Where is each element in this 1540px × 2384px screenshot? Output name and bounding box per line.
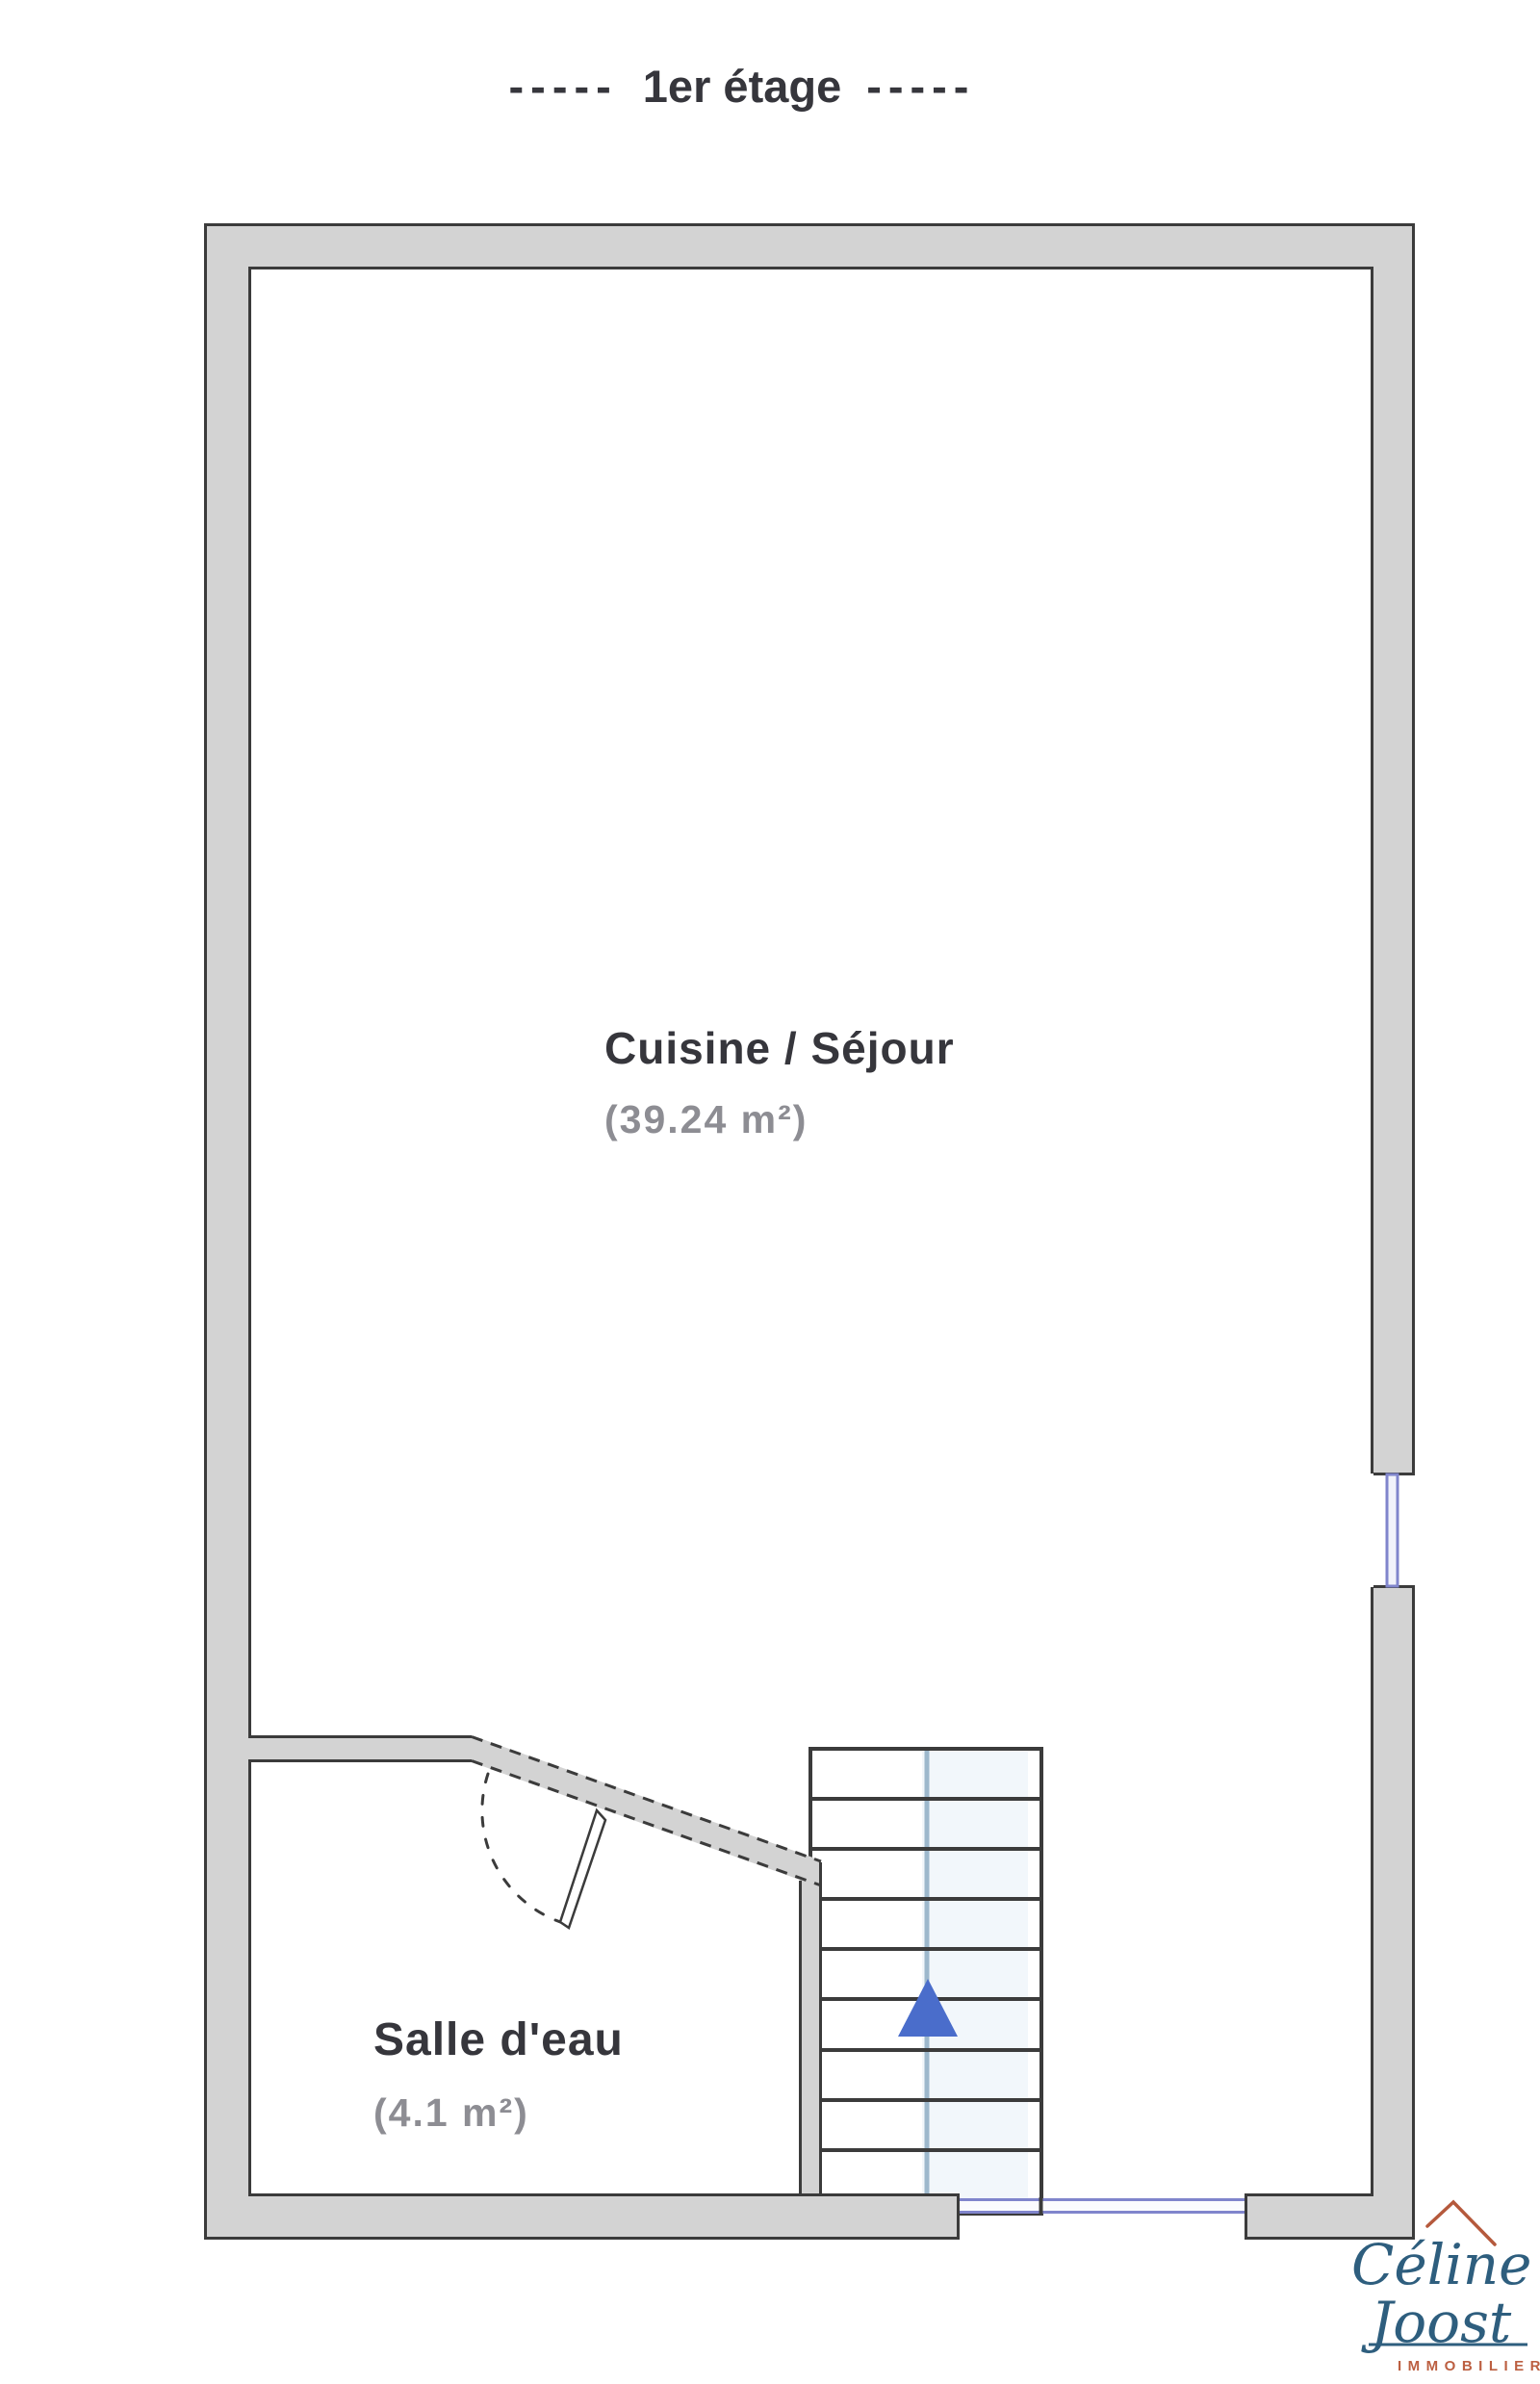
wall-top [204,223,1415,267]
stair-enclosure-wall [800,1860,821,2196]
wall-left [204,223,248,2240]
wall-right-lower [1373,1588,1415,2240]
staircase [810,1749,1041,2214]
room-label-cuisine-sejour: Cuisine / Séjour (39.24 m²) [604,1026,955,1140]
room-name: Salle d'eau [373,2017,624,2064]
room-area: (39.24 m²) [604,1100,955,1140]
floor-plan-page: ----- 1er étage ----- Cuisine / Séjour (… [0,0,1540,2384]
wall-right-upper [1373,223,1415,1473]
title-dashes-left: ----- [509,60,618,113]
partition-wall-horizontal [248,1735,472,1762]
title-text: 1er étage [643,60,841,113]
floor-plan-drawing [0,0,1540,2384]
room-name: Cuisine / Séjour [604,1026,955,1070]
window-glass-icon [1387,1474,1398,1586]
door-swing-arc [482,1774,563,1923]
logo-tagline: IMMOBILIER [1398,2358,1540,2374]
floor-title: ----- 1er étage ----- [0,60,1484,113]
room-label-salle-deau: Salle d'eau (4.1 m²) [373,2017,624,2133]
staircase-tint [922,1752,1028,2211]
wall-bottom-left [204,2196,960,2240]
bottom-wall-window [960,2197,1245,2215]
logo-name-line2: Joost [1371,2294,1511,2350]
right-wall-window [1387,1474,1398,1586]
logo-name-line1: Céline [1351,2237,1531,2293]
title-dashes-right: ----- [866,60,975,113]
room-area: (4.1 m²) [373,2093,624,2133]
partition-wall-diagonal [472,1735,821,1887]
door-leaf [560,1810,605,1928]
